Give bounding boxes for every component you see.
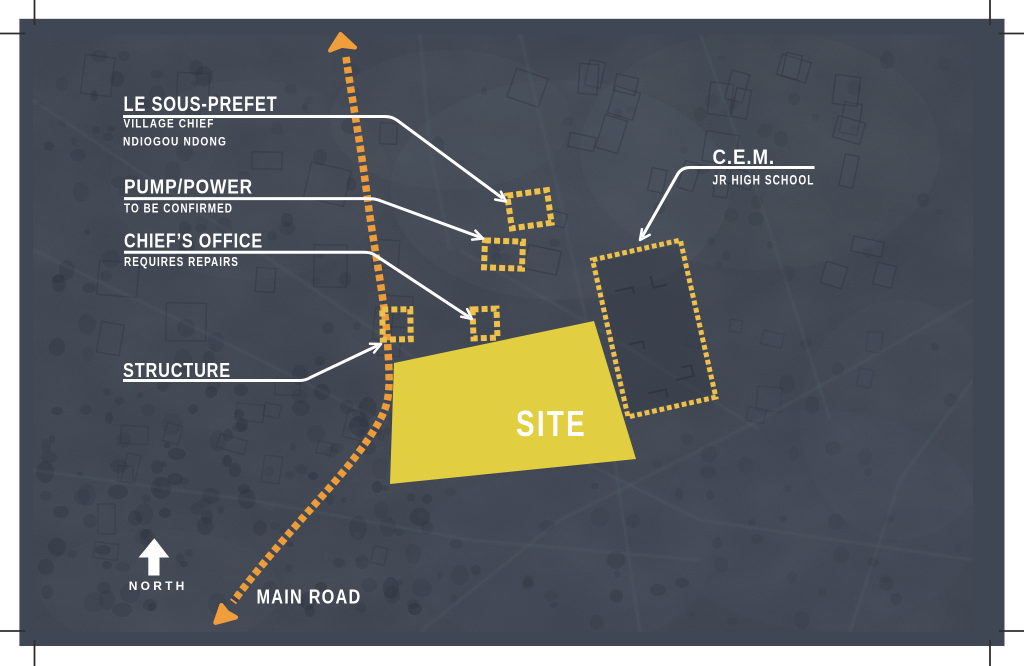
svg-text:NORTH: NORTH: [129, 579, 188, 593]
svg-text:C.E.M.: C.E.M.: [713, 146, 776, 169]
svg-text:NDIOGOU NDONG: NDIOGOU NDONG: [123, 137, 227, 149]
svg-text:LE SOUS-PREFET: LE SOUS-PREFET: [124, 93, 278, 116]
svg-text:TO BE CONFIRMED: TO BE CONFIRMED: [124, 202, 233, 216]
svg-text:STRUCTURE: STRUCTURE: [123, 360, 231, 382]
svg-text:REQUIRES REPAIRS: REQUIRES REPAIRS: [124, 255, 239, 269]
svg-text:MAIN ROAD: MAIN ROAD: [257, 587, 362, 609]
svg-text:JR HIGH SCHOOL: JR HIGH SCHOOL: [713, 171, 815, 187]
svg-text:PUMP/POWER: PUMP/POWER: [124, 177, 253, 199]
svg-text:VILLAGE CHIEF: VILLAGE CHIEF: [124, 119, 215, 131]
svg-text:SITE: SITE: [516, 403, 587, 444]
svg-text:CHIEF’S OFFICE: CHIEF’S OFFICE: [124, 231, 263, 253]
